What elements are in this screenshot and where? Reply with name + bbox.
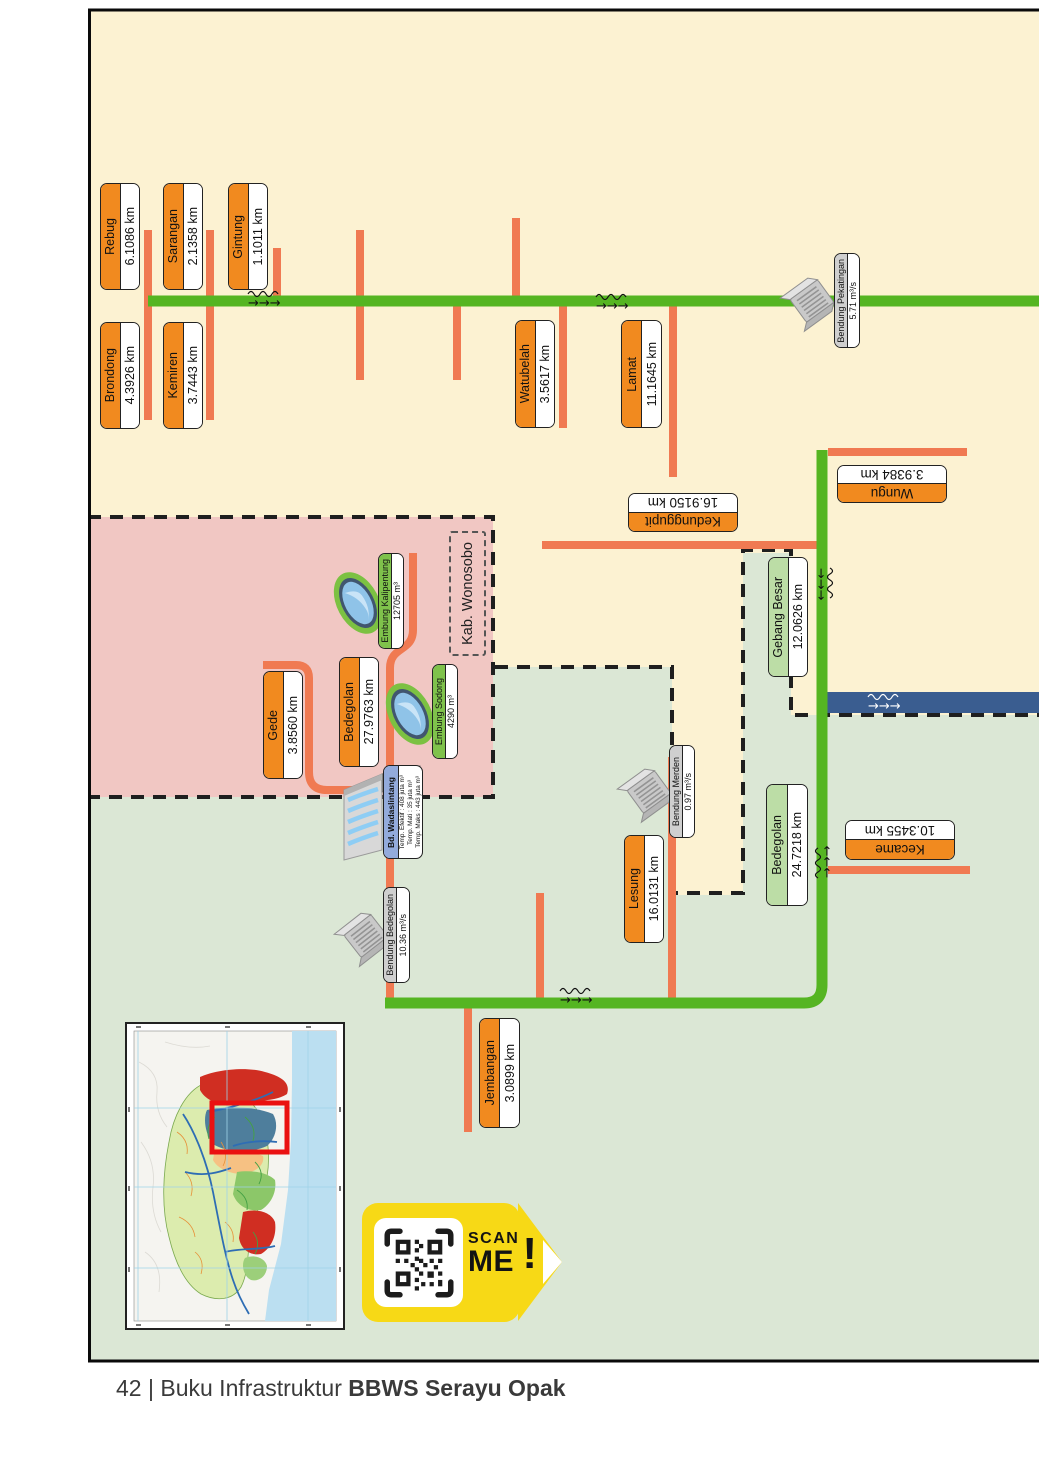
river-name: Jembangan	[483, 1040, 497, 1105]
river-length: 3.8560 km	[286, 696, 300, 754]
weir-name: Bendung Bedegolan	[385, 894, 395, 976]
reservoir-label-kalipentung: Embung Kalipentung 12705 m³	[378, 553, 404, 649]
river-name: Brondong	[103, 348, 117, 402]
river-length: 27.9763 km	[362, 679, 376, 744]
river-length: 1.1011 km	[251, 208, 265, 265]
river-label-watubelah: Watubelah 3.5617 km	[515, 320, 555, 428]
river-label-rebug: Rebug 6.1086 km	[100, 183, 140, 290]
river-name: Watubelah	[518, 344, 532, 403]
weir-name: Bendung Pekatingan	[836, 259, 846, 343]
river-label-lamat: Lamat 11.1645 km	[621, 320, 662, 428]
weir-label-bedegolan: Bendung Bedegolan 10.36 m³/s	[383, 887, 410, 983]
river-length: 3.0899 km	[503, 1044, 517, 1102]
river-name: Lesung	[627, 868, 641, 909]
river-label-kemiren: Kemiren 3.7443 km	[163, 322, 203, 429]
reservoir-volume: 12705 m³	[392, 582, 402, 620]
exclamation-mark: !	[522, 1234, 537, 1274]
river-label-wungu: Wungu 3.9384 km	[837, 465, 947, 503]
qr-badge-notch	[543, 1240, 562, 1284]
weir-discharge: 0.97 m³/s	[683, 773, 693, 811]
river-name: Kedunggupit	[645, 515, 721, 530]
region-name: Kab. Wonosobo	[460, 542, 476, 645]
river-label-brondong: Brondong 4.3926 km	[100, 322, 140, 429]
dam-label-wadaslintang: Bd. Wadaslintang Temp. Efektif : 408 jut…	[383, 765, 423, 859]
river-length: 24.7218 km	[790, 812, 804, 877]
footer-separator: |	[148, 1375, 154, 1401]
river-length: 16.0131 km	[647, 856, 661, 921]
river-length: 16.9150 km	[648, 496, 719, 511]
river-label-gebang-besar: Gebang Besar 12.0626 km	[768, 557, 808, 677]
river-name: Lamat	[625, 357, 639, 392]
river-length: 3.9384 km	[860, 467, 923, 482]
map-inset	[125, 1022, 345, 1330]
river-length: 3.5617 km	[538, 345, 552, 403]
reservoir-name: Embung Kalipentung	[380, 559, 390, 643]
weir-label-pekatingan: Bendung Pekatingan 5.71 m³/s	[834, 253, 860, 348]
weir-discharge: 5.71 m³/s	[848, 282, 858, 320]
river-label-kedunggupit: Kedunggupit 16.9150 km	[628, 493, 738, 532]
river-name: Kecame	[875, 842, 925, 857]
river-label-gintung: Gintung 1.1011 km	[228, 183, 268, 290]
reservoir-name: Embung Sodong	[434, 678, 444, 745]
dam-storage-effective: Temp. Efektif : 408 juta m³	[399, 775, 406, 849]
dam-storage-dead: Temp. Mati : 35 juta m³	[407, 780, 414, 845]
dam-storage-max: Temp. Maks : 443 juta m³	[415, 776, 422, 848]
river-name: Rebug	[103, 218, 117, 255]
page-footer: 42 | Buku Infrastruktur BBWS Serayu Opak	[116, 1375, 566, 1402]
footer-title-bold: BBWS Serayu Opak	[348, 1375, 565, 1401]
river-name: Bedegolan	[342, 682, 356, 742]
river-label-kecame: Kecame 10.3455 km	[845, 820, 955, 860]
page-number: 42	[116, 1375, 142, 1401]
river-length: 11.1645 km	[645, 342, 659, 406]
river-name: Gede	[266, 710, 280, 741]
river-label-gede: Gede 3.8560 km	[263, 671, 303, 779]
book-page: →→→ →→→	[0, 0, 1039, 1468]
river-name: Sarangan	[166, 209, 180, 263]
river-length: 10.3455 km	[865, 823, 936, 838]
river-name: Kemiren	[166, 352, 180, 399]
river-label-jembangan: Jembangan 3.0899 km	[479, 1018, 520, 1128]
river-label-sarangan: Sarangan 2.1358 km	[163, 183, 203, 290]
river-length: 3.7443 km	[186, 346, 200, 404]
footer-title: Buku Infrastruktur	[160, 1375, 342, 1401]
river-name: Wungu	[871, 486, 914, 501]
river-length: 2.1358 km	[186, 207, 200, 265]
canal-band	[822, 692, 1039, 713]
scan-me-text: SCAN ME !	[468, 1231, 537, 1277]
weir-name: Bendung Merden	[671, 757, 681, 826]
qr-code-icon	[383, 1227, 455, 1299]
river-label-bedegolan-lower: Bedegolan 24.7218 km	[766, 784, 808, 906]
river-label-lesung: Lesung 16.0131 km	[624, 835, 664, 943]
river-label-bedegolan-upper: Bedegolan 27.9763 km	[339, 657, 379, 767]
river-length: 6.1086 km	[123, 207, 137, 265]
river-length: 4.3926 km	[123, 346, 137, 404]
river-name: Gintung	[231, 215, 245, 259]
region-box-wonosobo: Kab. Wonosobo	[449, 531, 486, 656]
qr-code-panel	[374, 1218, 463, 1307]
river-name: Gebang Besar	[771, 577, 785, 658]
weir-discharge: 10.36 m³/s	[398, 914, 408, 957]
river-name: Bedegolan	[770, 815, 784, 875]
reservoir-volume: 4290 m³	[446, 695, 456, 728]
river-length: 12.0626 km	[791, 584, 805, 649]
reservoir-label-sodong: Embung Sodong 4290 m³	[432, 664, 458, 759]
weir-label-merden: Bendung Merden 0.97 m³/s	[669, 745, 695, 838]
dam-name: Bd. Wadaslintang	[386, 777, 396, 848]
me-label: ME	[468, 1247, 519, 1277]
scan-me-badge: SCAN ME !	[362, 1203, 520, 1322]
